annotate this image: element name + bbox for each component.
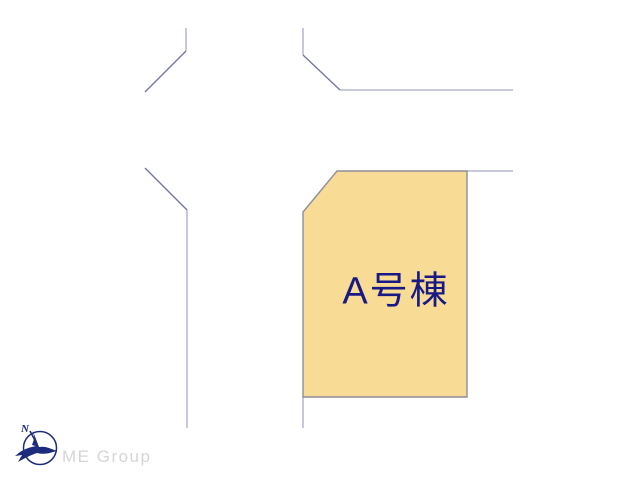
lot-a-label: A号棟 <box>342 259 449 314</box>
compass-n-letter: N <box>20 423 30 435</box>
me-group-wordmark: ME Group <box>62 447 151 467</box>
site-plan-drawing <box>0 0 640 480</box>
site-plan-canvas: A号棟 N ME Group <box>0 0 640 480</box>
road-segment-north-left-diagonal <box>145 51 186 92</box>
bird-compass-logo-icon: N <box>12 418 62 472</box>
me-group-logo: N ME Group <box>12 418 192 474</box>
road-segment-west-corner-diagonal <box>145 168 187 210</box>
road-segment-north-right-diagonal <box>303 55 340 90</box>
